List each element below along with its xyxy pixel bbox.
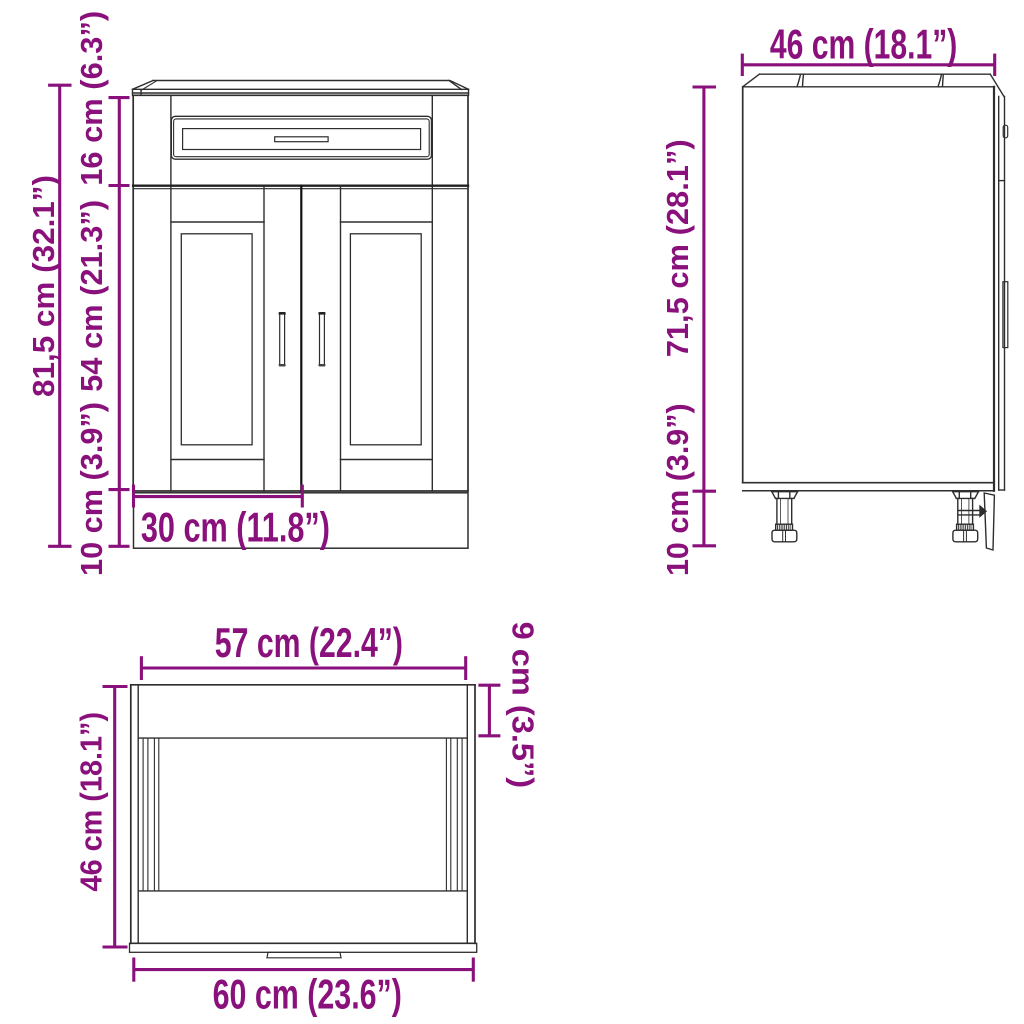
svg-text:9 cm (3.5”): 9 cm (3.5”) xyxy=(505,622,540,789)
svg-text:46 cm (18.1”): 46 cm (18.1”) xyxy=(74,712,109,892)
svg-text:60 cm (23.6”): 60 cm (23.6”) xyxy=(213,970,402,1017)
svg-text:10 cm (3.9”): 10 cm (3.9”) xyxy=(660,403,695,576)
svg-text:16 cm (6.3”): 16 cm (6.3”) xyxy=(74,11,109,186)
svg-text:10 cm (3.9”): 10 cm (3.9”) xyxy=(74,402,109,576)
svg-text:46 cm (18.1”): 46 cm (18.1”) xyxy=(770,21,957,68)
svg-text:30 cm (11.8”): 30 cm (11.8”) xyxy=(141,504,330,551)
svg-text:54 cm (21.3”): 54 cm (21.3”) xyxy=(74,200,109,392)
svg-text:57 cm (22.4”): 57 cm (22.4”) xyxy=(215,619,403,666)
svg-text:81,5 cm (32.1”): 81,5 cm (32.1”) xyxy=(26,175,61,397)
svg-text:71,5 cm (28.1”): 71,5 cm (28.1”) xyxy=(660,139,695,357)
